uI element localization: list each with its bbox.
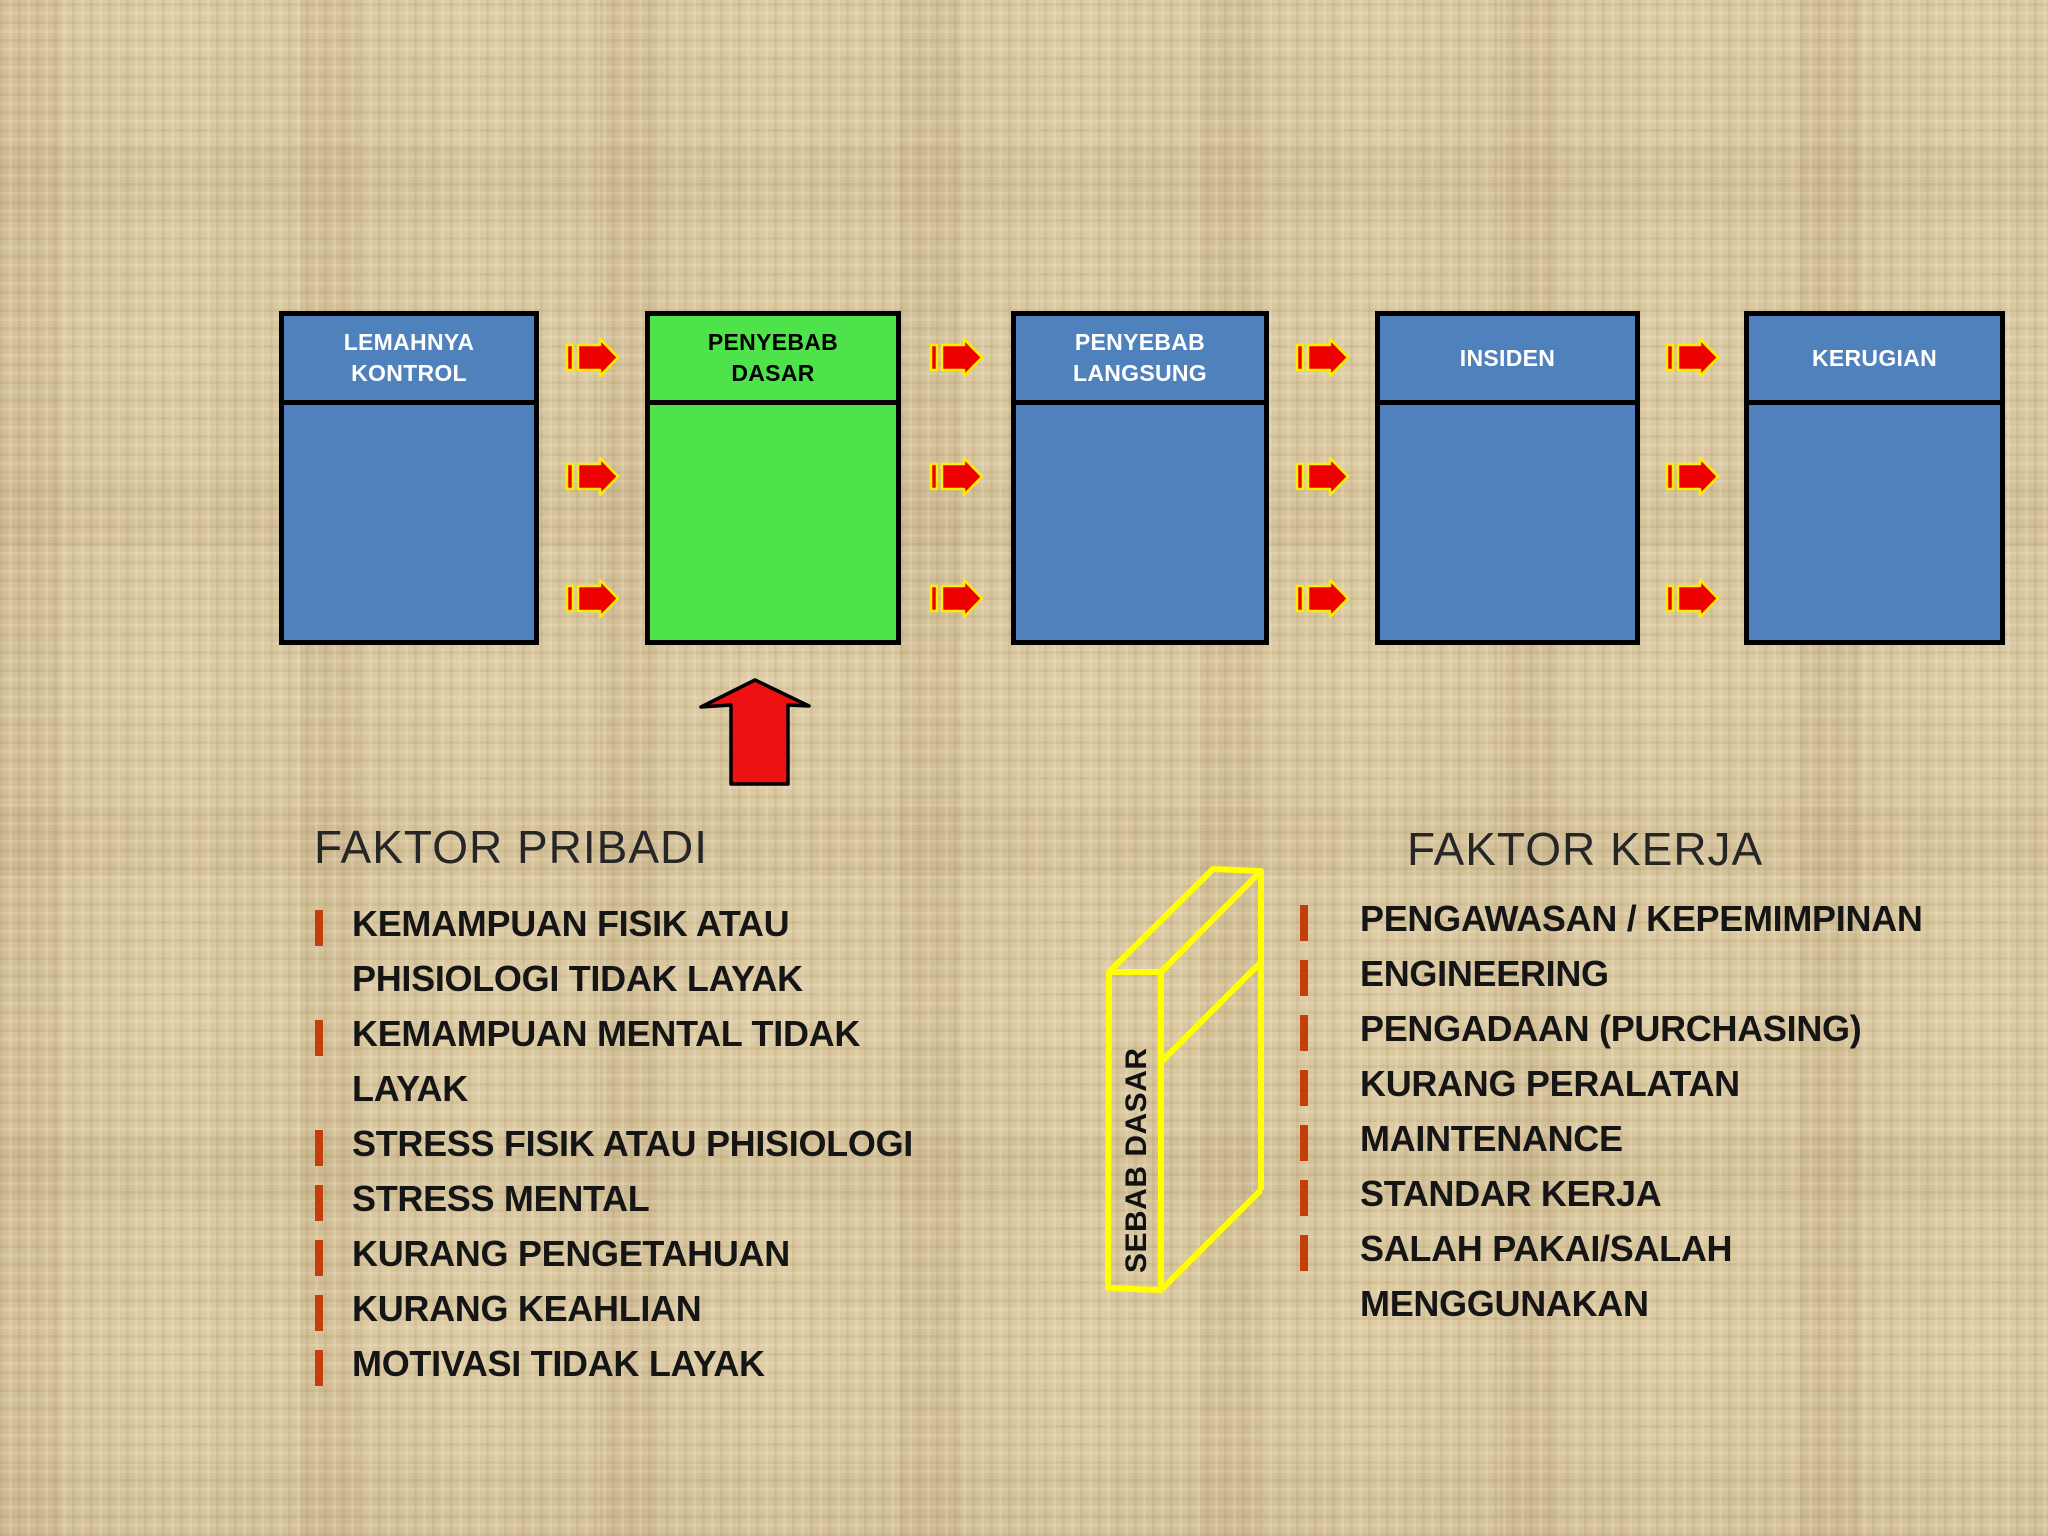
list-item: MAINTENANCE [1300, 1118, 2048, 1173]
flow-box-kerugian: KERUGIAN [1744, 311, 2005, 645]
list-item-continuation: LAYAK [315, 1068, 1035, 1123]
flow-box-title-line1: LEMAHNYA [344, 327, 475, 358]
flow-box-title: KERUGIAN [1749, 316, 2000, 405]
striped-right-arrow-icon [564, 578, 620, 618]
slide-canvas: LEMAHNYA KONTROL PENYEBAB DASAR PENYEBAB… [0, 0, 2048, 1536]
list-item-continuation: MENGGUNAKAN [1300, 1283, 2048, 1338]
list-item-text: KURANG PERALATAN [1360, 1063, 1740, 1104]
flow-box-title-line1: KERUGIAN [1812, 343, 1937, 374]
list-item: MOTIVASI TIDAK LAYAK [315, 1343, 1035, 1398]
list-item: STANDAR KERJA [1300, 1173, 2048, 1228]
flow-box-lemahnya-kontrol: LEMAHNYA KONTROL [279, 311, 539, 645]
striped-right-arrow-icon [564, 337, 620, 377]
list-item: PENGAWASAN / KEPEMIMPINAN [1300, 898, 2048, 953]
list-item-text: LAYAK [352, 1068, 468, 1109]
bullet-bar-icon [1300, 960, 1308, 996]
bullet-bar-icon [315, 910, 323, 946]
list-item-text: MOTIVASI TIDAK LAYAK [352, 1343, 765, 1384]
flow-box-body [1749, 405, 2000, 640]
faktor-kerja-list: PENGAWASAN / KEPEMIMPINAN ENGINEERING PE… [1300, 898, 2048, 1338]
flow-box-body [1380, 405, 1635, 640]
faktor-kerja-heading: FAKTOR KERJA [1407, 822, 1763, 876]
flow-box-penyebab-dasar: PENYEBAB DASAR [645, 311, 901, 645]
list-item: PENGADAAN (PURCHASING) [1300, 1008, 2048, 1063]
list-item: KEMAMPUAN FISIK ATAU [315, 903, 1035, 958]
flow-box-title-line2: DASAR [731, 358, 814, 389]
striped-right-arrow-icon [928, 578, 984, 618]
striped-right-arrow-icon [1294, 456, 1350, 496]
list-item-continuation: PHISIOLOGI TIDAK LAYAK [315, 958, 1035, 1013]
list-item: KURANG PERALATAN [1300, 1063, 2048, 1118]
list-item-text: PHISIOLOGI TIDAK LAYAK [352, 958, 803, 999]
flow-box-title: PENYEBAB LANGSUNG [1016, 316, 1264, 405]
list-item-text: KURANG KEAHLIAN [352, 1288, 702, 1329]
faktor-pribadi-heading: FAKTOR PRIBADI [314, 820, 708, 874]
list-item-text: KURANG PENGETAHUAN [352, 1233, 790, 1274]
up-arrow-icon [699, 677, 811, 787]
list-item-text: MENGGUNAKAN [1360, 1283, 1649, 1324]
list-item-text: SALAH PAKAI/SALAH [1360, 1228, 1732, 1269]
striped-right-arrow-icon [1664, 456, 1720, 496]
bullet-bar-icon [1300, 1235, 1308, 1271]
flow-box-body [650, 405, 896, 640]
sebab-dasar-label: SEBAB DASAR [1120, 1047, 1153, 1273]
list-item-text: PENGADAAN (PURCHASING) [1360, 1008, 1861, 1049]
list-item-text: KEMAMPUAN MENTAL TIDAK [352, 1013, 860, 1054]
flow-box-insiden: INSIDEN [1375, 311, 1640, 645]
bullet-bar-icon [315, 1130, 323, 1166]
bullet-bar-icon [1300, 1125, 1308, 1161]
flow-box-body [284, 405, 534, 640]
flow-box-title-line1: PENYEBAB [1075, 327, 1205, 358]
list-item-text: MAINTENANCE [1360, 1118, 1623, 1159]
striped-right-arrow-icon [1664, 578, 1720, 618]
list-item: SALAH PAKAI/SALAH [1300, 1228, 2048, 1283]
flow-box-title-line1: INSIDEN [1460, 343, 1555, 374]
list-item-text: PENGAWASAN / KEPEMIMPINAN [1360, 898, 1923, 939]
flow-box-title-line2: LANGSUNG [1073, 358, 1207, 389]
striped-right-arrow-icon [928, 337, 984, 377]
faktor-pribadi-list: KEMAMPUAN FISIK ATAU PHISIOLOGI TIDAK LA… [315, 903, 1035, 1398]
flow-box-penyebab-langsung: PENYEBAB LANGSUNG [1011, 311, 1269, 645]
striped-right-arrow-icon [1294, 578, 1350, 618]
striped-right-arrow-icon [1294, 337, 1350, 377]
flow-box-title: LEMAHNYA KONTROL [284, 316, 534, 405]
list-item-text: STANDAR KERJA [1360, 1173, 1661, 1214]
bullet-bar-icon [1300, 905, 1308, 941]
list-item: STRESS MENTAL [315, 1178, 1035, 1233]
bullet-bar-icon [315, 1020, 323, 1056]
striped-right-arrow-icon [564, 456, 620, 496]
striped-right-arrow-icon [928, 456, 984, 496]
bullet-bar-icon [1300, 1015, 1308, 1051]
striped-right-arrow-icon [1664, 337, 1720, 377]
flow-box-title: INSIDEN [1380, 316, 1635, 405]
bullet-bar-icon [315, 1350, 323, 1386]
bullet-bar-icon [315, 1240, 323, 1276]
flow-box-title-line1: PENYEBAB [708, 327, 838, 358]
bullet-bar-icon [315, 1185, 323, 1221]
bullet-bar-icon [1300, 1180, 1308, 1216]
bullet-bar-icon [315, 1295, 323, 1331]
list-item: KURANG KEAHLIAN [315, 1288, 1035, 1343]
list-item-text: STRESS FISIK ATAU PHISIOLOGI [352, 1123, 913, 1164]
bullet-bar-icon [1300, 1070, 1308, 1106]
list-item-text: STRESS MENTAL [352, 1178, 649, 1219]
list-item: KEMAMPUAN MENTAL TIDAK [315, 1013, 1035, 1068]
list-item: ENGINEERING [1300, 953, 2048, 1008]
list-item: STRESS FISIK ATAU PHISIOLOGI [315, 1123, 1035, 1178]
flow-box-title: PENYEBAB DASAR [650, 316, 896, 405]
list-item-text: KEMAMPUAN FISIK ATAU [352, 903, 789, 944]
flow-box-title-line2: KONTROL [351, 358, 467, 389]
list-item: KURANG PENGETAHUAN [315, 1233, 1035, 1288]
list-item-text: ENGINEERING [1360, 953, 1609, 994]
sebab-dasar-3d-box: SEBAB DASAR [1095, 858, 1275, 1303]
flow-box-body [1016, 405, 1264, 640]
